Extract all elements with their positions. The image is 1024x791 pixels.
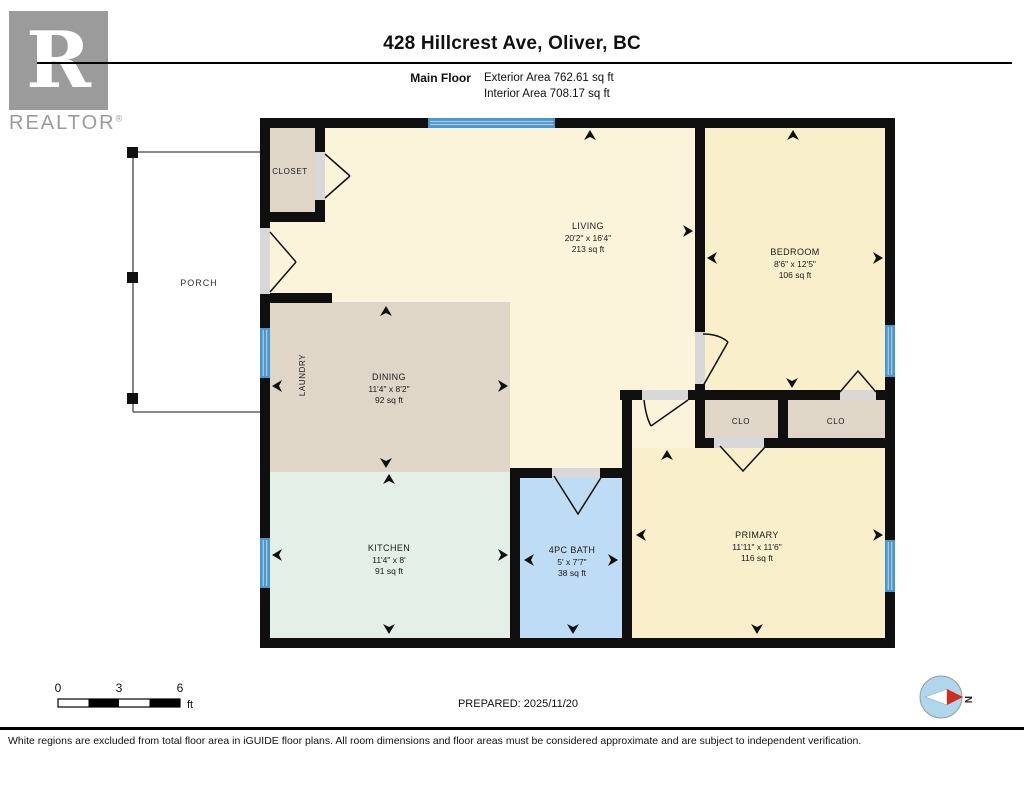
- svg-text:116 sq ft: 116 sq ft: [741, 553, 774, 563]
- svg-text:11'4" x 8'2": 11'4" x 8'2": [368, 384, 409, 394]
- scale-tick-0: 0: [55, 681, 62, 695]
- footer-divider: [0, 727, 1024, 730]
- svg-text:KITCHEN: KITCHEN: [368, 543, 410, 553]
- svg-text:106 sq ft: 106 sq ft: [779, 270, 812, 280]
- room-label-clo-right: CLO: [827, 417, 845, 426]
- wall-closet-right-top: [315, 118, 325, 152]
- primary-window: [885, 540, 895, 592]
- svg-text:4PC BATH: 4PC BATH: [549, 545, 596, 555]
- svg-text:LIVING: LIVING: [572, 221, 604, 231]
- scale-bar: 0 3 6 ft: [55, 681, 193, 711]
- scale-tick-3: 3: [116, 681, 123, 695]
- north-label: N: [962, 696, 973, 703]
- porch-post: [127, 272, 138, 283]
- hall-door-opening: [642, 390, 688, 400]
- clo-left-door-opening: [714, 438, 764, 448]
- living-window: [428, 118, 555, 128]
- wall-laundry-stub: [260, 293, 332, 303]
- laundry-window: [260, 328, 270, 378]
- svg-text:91 sq ft: 91 sq ft: [375, 566, 404, 576]
- wall-living-bedroom: [695, 118, 705, 332]
- wall-outer-top: [260, 118, 895, 128]
- kitchen-window: [260, 538, 270, 588]
- wall-bath-west: [510, 468, 520, 648]
- svg-text:8'6" x 12'5": 8'6" x 12'5": [774, 259, 816, 269]
- svg-text:PRIMARY: PRIMARY: [735, 530, 779, 540]
- wall-bath-east: [622, 390, 632, 648]
- svg-text:11'4" x 8': 11'4" x 8': [372, 555, 406, 565]
- svg-text:38 sq ft: 38 sq ft: [558, 568, 587, 578]
- svg-text:11'11" x 11'6": 11'11" x 11'6": [732, 542, 781, 552]
- compass: N: [920, 676, 973, 718]
- svg-text:92 sq ft: 92 sq ft: [375, 395, 404, 405]
- wall-closet-right-bottom: [315, 200, 325, 222]
- closet-door-opening: [315, 152, 325, 200]
- porch-post: [127, 393, 138, 404]
- entry-door-opening: [260, 228, 270, 294]
- prepared-date-label: PREPARED: 2025/11/20: [458, 698, 578, 710]
- scale-tick-6: 6: [177, 681, 184, 695]
- scale-bar-segment: [150, 699, 181, 707]
- svg-text:20'2" x 16'4": 20'2" x 16'4": [565, 233, 612, 243]
- svg-text:BEDROOM: BEDROOM: [770, 247, 819, 257]
- floor-plan-page: R REALTOR® 428 Hillcrest Ave, Oliver, BC…: [0, 0, 1024, 791]
- room-label-closet: CLOSET: [272, 167, 308, 176]
- svg-text:213 sq ft: 213 sq ft: [572, 244, 605, 254]
- bath-door-opening: [552, 468, 600, 478]
- porch-post: [127, 147, 138, 158]
- floor-plan-svg: LIVING 20'2" x 16'4" 213 sq ft BEDROOM 8…: [0, 0, 1024, 791]
- clo-right-door-opening: [840, 390, 876, 400]
- room-label-laundry: LAUNDRY: [298, 354, 307, 396]
- bedroom-door-opening: [695, 332, 705, 384]
- disclaimer-text: White regions are excluded from total fl…: [8, 735, 1018, 747]
- bedroom-window: [885, 325, 895, 377]
- scale-unit-label: ft: [187, 699, 193, 711]
- room-label-porch: PORCH: [180, 278, 218, 288]
- svg-text:5' x 7'7": 5' x 7'7": [557, 557, 586, 567]
- svg-text:DINING: DINING: [372, 372, 406, 382]
- room-label-clo-left: CLO: [732, 417, 750, 426]
- wall-outer-bottom: [260, 638, 895, 648]
- scale-bar-segment: [89, 699, 120, 707]
